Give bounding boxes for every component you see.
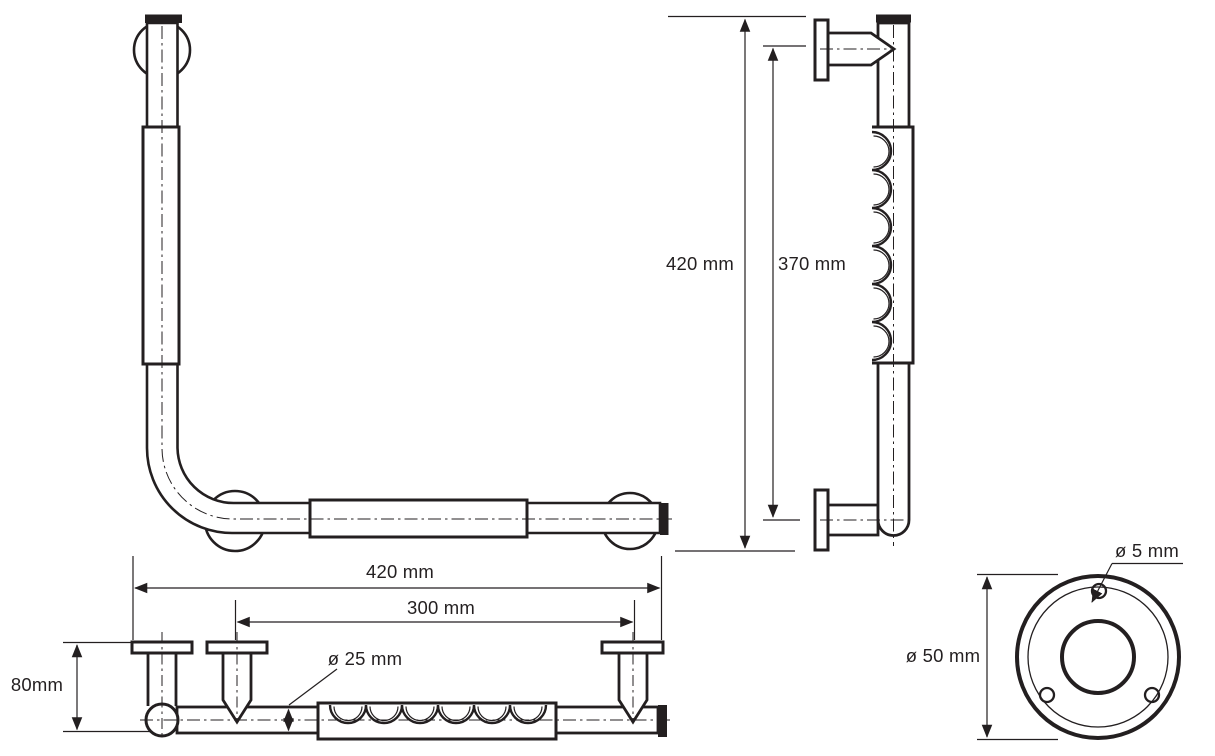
tube-end-cap-bottom-right xyxy=(658,705,667,737)
dim-side-420 xyxy=(668,17,806,552)
tube-end-cap-side-top xyxy=(876,15,911,23)
drawing-linework xyxy=(0,0,1215,756)
flange-detail-view xyxy=(977,564,1183,740)
tube-end-cap-top xyxy=(145,15,182,24)
leader-line xyxy=(289,669,337,705)
flange-center-hole xyxy=(1062,621,1134,693)
dim-label-flange-outer-diameter: ø 50 mm xyxy=(906,645,980,667)
dim-side-370 xyxy=(763,46,806,520)
l-tube-outline xyxy=(147,23,660,533)
dim-screw-hole-5 xyxy=(1092,564,1183,603)
flange-outer-circle xyxy=(1017,576,1179,738)
flange-inner-ring xyxy=(1028,587,1168,727)
dim-label-screw-hole-diameter: ø 5 mm xyxy=(1115,540,1179,562)
side-view xyxy=(668,15,913,552)
dim-label-tube-diameter: ø 25 mm xyxy=(328,648,402,670)
wall-plate-top xyxy=(815,20,828,80)
centerline-l xyxy=(162,26,672,519)
screw-hole-bottom-left xyxy=(1040,688,1054,702)
dim-label-bottom-mount-spacing: 300 mm xyxy=(407,597,475,619)
dim-label-side-grip-length: 370 mm xyxy=(778,253,846,275)
dim-mount-80 xyxy=(63,643,150,732)
screw-hole-top xyxy=(1092,584,1106,598)
dim-label-mount-projection: 80mm xyxy=(11,674,63,696)
front-view xyxy=(134,15,672,552)
technical-drawing-canvas: 420 mm 370 mm 420 mm 300 mm ø 25 mm 80mm… xyxy=(0,0,1215,756)
grip-sleeve-vertical xyxy=(143,127,179,364)
dim-label-bottom-total-width: 420 mm xyxy=(366,561,434,583)
dim-label-side-total-height: 420 mm xyxy=(666,253,734,275)
